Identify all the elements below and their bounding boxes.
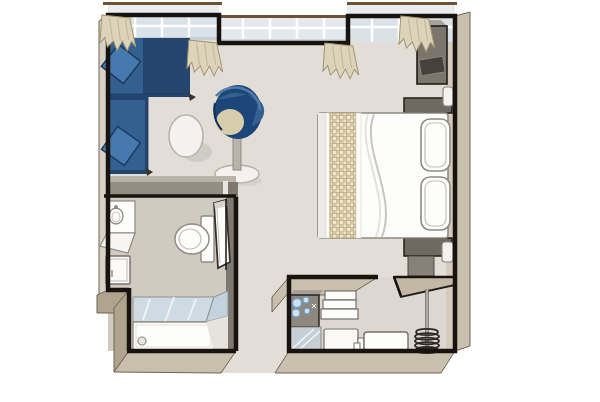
bed-runner	[330, 113, 356, 238]
shower-tray	[133, 322, 214, 350]
pillow	[421, 119, 450, 171]
light-switch	[442, 242, 453, 262]
toilet-bowl	[175, 224, 209, 254]
balcony-rail	[103, 2, 222, 5]
glass-tumbler	[292, 309, 300, 317]
wall-tv	[419, 56, 445, 76]
minibar-counter	[290, 290, 323, 327]
glass-tumbler	[303, 297, 309, 303]
floor-plan	[0, 0, 600, 402]
runner-edge	[356, 113, 361, 238]
light-switch	[443, 87, 453, 106]
runner-edge	[326, 113, 330, 238]
balcony-rail	[347, 2, 457, 5]
floor-plan-canvas	[0, 0, 600, 402]
glass-tumbler	[293, 299, 302, 308]
glass-tumbler	[304, 308, 310, 314]
side-unit	[408, 256, 434, 276]
bottom-left-skirt	[114, 351, 236, 373]
faucet	[114, 205, 118, 209]
bottom-right-skirt	[275, 351, 455, 373]
chair-seat-cushion	[216, 109, 244, 135]
chair-stem	[233, 136, 241, 170]
pillow	[421, 177, 450, 230]
shower	[133, 291, 228, 350]
balcony-rail	[219, 15, 348, 18]
shower-drain	[138, 337, 146, 345]
double-bed	[318, 113, 450, 238]
window-outer-glass	[347, 5, 455, 15]
mirror-panel	[290, 327, 321, 350]
